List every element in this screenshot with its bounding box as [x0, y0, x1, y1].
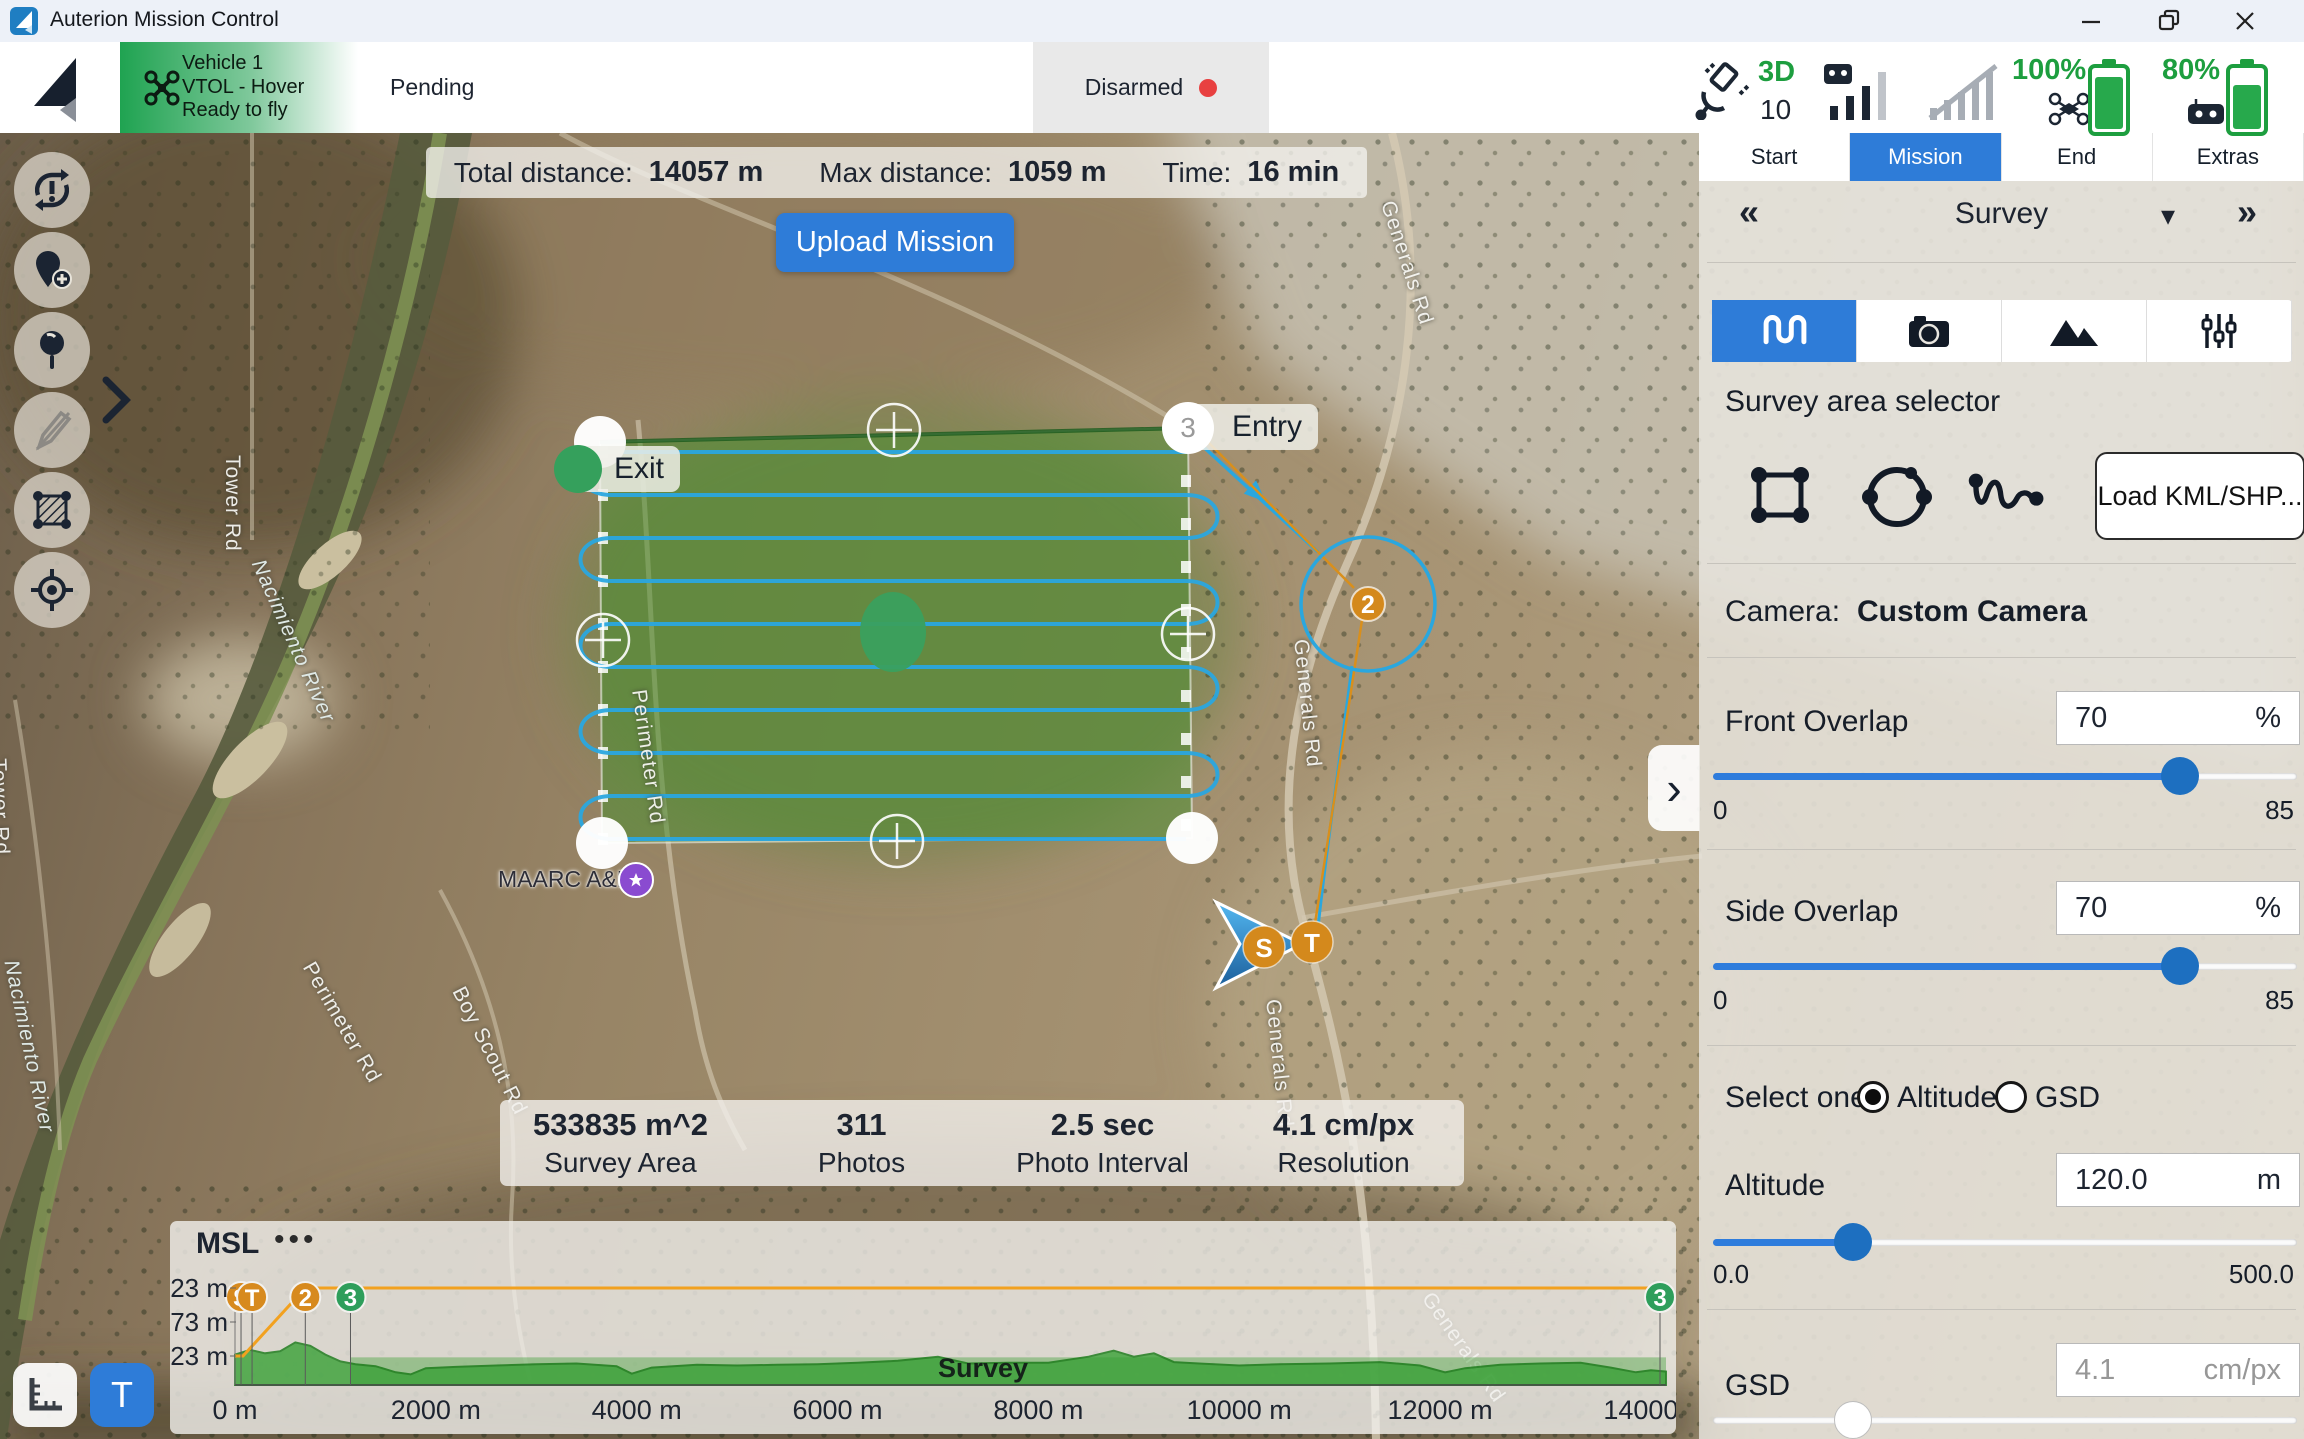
segment-advanced-button[interactable] [2147, 300, 2292, 362]
vehicle-battery-drone-icon [2048, 90, 2090, 128]
altitude-label: Altitude [1725, 1169, 1825, 1203]
altitude-max: 500.0 [2229, 1259, 2294, 1290]
chart-x-tick: 14000 [1603, 1395, 1676, 1425]
upload-mission-button[interactable]: Upload Mission [776, 213, 1014, 272]
survey-stats-bar: 533835 m^2 Survey Area 311 Photos 2.5 se… [500, 1100, 1464, 1186]
side-overlap-min: 0 [1713, 985, 1727, 1016]
tab-mission[interactable]: Mission [1850, 133, 2001, 181]
transects-icon [1758, 313, 1810, 349]
max-distance-value: 1059 m [1008, 156, 1106, 189]
altitude-slider-handle[interactable] [1834, 1223, 1872, 1261]
chart-x-tick: 8000 m [993, 1395, 1083, 1425]
stat-resolution: 4.1 cm/px Resolution [1223, 1105, 1464, 1182]
stat-survey-area: 533835 m^2 Survey Area [500, 1105, 741, 1182]
gsd-value: 4.1 [2075, 1354, 2115, 1387]
telemetry-signal-lost-icon[interactable] [1926, 60, 2002, 122]
gps-fix-type: 3D [1758, 56, 1795, 89]
poi-badge-icon[interactable] [618, 862, 654, 898]
svg-text:T: T [245, 1285, 260, 1312]
gps-satellite-icon[interactable] [1694, 58, 1752, 120]
mission-item-dropdown-icon[interactable]: ▾ [2161, 199, 2175, 232]
altitude-radio-label[interactable]: Altitude [1897, 1081, 1997, 1115]
front-overlap-slider[interactable] [1713, 773, 2297, 780]
chart-x-tick: 12000 m [1388, 1395, 1493, 1425]
exit-marker[interactable] [554, 445, 602, 493]
quadcopter-icon [144, 70, 180, 106]
draw-tool-button[interactable] [14, 392, 90, 468]
next-mission-item-button[interactable]: » [2237, 191, 2257, 233]
altitude-radio[interactable] [1857, 1081, 1889, 1113]
tab-extras[interactable]: Extras [2153, 133, 2304, 181]
road-label-tower-rd-1: Tower Rd [220, 455, 244, 552]
mission-status[interactable]: Pending [390, 42, 474, 133]
segment-terrain-button[interactable] [2002, 300, 2147, 362]
altitude-min: 0.0 [1713, 1259, 1749, 1290]
close-icon [2234, 10, 2256, 32]
side-overlap-label: Side Overlap [1725, 895, 1898, 929]
circle-shape-icon [1859, 457, 1935, 533]
corner-handle-entry[interactable]: 3 [1162, 402, 1214, 454]
front-overlap-max: 85 [2265, 795, 2294, 826]
survey-area-tool-button[interactable] [14, 472, 90, 548]
altitude-unit: m [2257, 1164, 2281, 1197]
camera-label: Camera: [1725, 595, 1840, 629]
circle-area-button[interactable] [1857, 455, 1937, 535]
draw-icon [29, 407, 75, 453]
side-overlap-slider[interactable] [1713, 963, 2297, 970]
controller-battery-percent: 80% [2162, 54, 2220, 87]
panel-collapse-button[interactable]: › [1648, 745, 1700, 831]
svg-text:3: 3 [344, 1285, 357, 1312]
app-logo-icon [10, 7, 38, 35]
center-on-location-button[interactable] [14, 552, 90, 628]
resolution-value: 4.1 cm/px [1223, 1105, 1464, 1145]
photos-value: 311 [741, 1105, 982, 1145]
mountain-icon [2048, 314, 2100, 348]
sync-mission-button[interactable] [14, 152, 90, 228]
survey-area-label: Survey Area [500, 1145, 741, 1181]
chart-y-ticks: 323 m273 m223 m [170, 1273, 236, 1371]
mission-item-selector[interactable]: Survey [1699, 197, 2304, 231]
panel-collapse-chevron-icon: › [1666, 761, 1681, 815]
polygon-shape-icon [1745, 459, 1817, 531]
survey-area-selector-label: Survey area selector [1725, 385, 2000, 419]
vehicle-selector[interactable]: Vehicle 1 VTOL - Hover Ready to fly [120, 42, 358, 133]
segment-camera-button[interactable] [1857, 300, 2002, 362]
tab-start[interactable]: Start [1699, 133, 1850, 181]
add-waypoint-button[interactable] [14, 232, 90, 308]
total-distance-value: 14057 m [649, 156, 764, 189]
exit-label: Exit [614, 452, 664, 486]
gsd-label: GSD [1725, 1369, 1790, 1403]
arm-status-label: Disarmed [1085, 74, 1183, 101]
gsd-input[interactable]: 4.1 cm/px [2056, 1343, 2300, 1397]
pin-tool-button[interactable] [14, 312, 90, 388]
tab-end[interactable]: End [2002, 133, 2153, 181]
restore-icon [2157, 9, 2181, 33]
upload-mission-label: Upload Mission [796, 226, 994, 259]
front-overlap-unit: % [2255, 702, 2281, 735]
minimize-icon [2080, 10, 2102, 32]
gsd-slider-handle[interactable] [1834, 1401, 1872, 1439]
front-overlap-label: Front Overlap [1725, 705, 1908, 739]
survey-band-label: Survey [938, 1353, 1028, 1383]
load-kml-shp-label: Load KML/SHP... [2097, 481, 2302, 512]
chevron-right-icon [98, 372, 134, 428]
left-toolbar-expand-button[interactable] [98, 372, 134, 433]
max-distance-label: Max distance: [819, 157, 992, 189]
elevation-plot: ST233 0 m2000 m4000 m6000 m8000 m10000 m… [170, 1221, 1676, 1434]
main-toolbar: Vehicle 1 VTOL - Hover Ready to fly Pend… [0, 42, 2304, 133]
chart-y-tick: 323 m [170, 1273, 228, 1303]
elevation-profile-panel: ST233 0 m2000 m4000 m6000 m8000 m10000 m… [170, 1221, 1676, 1434]
vehicle-type: VTOL - Hover [182, 76, 304, 100]
chart-title: MSL [196, 1227, 259, 1261]
photo-interval-label: Photo Interval [982, 1145, 1223, 1181]
close-button[interactable] [2216, 0, 2274, 42]
svg-text:2: 2 [299, 1285, 312, 1312]
front-overlap-min: 0 [1713, 795, 1727, 826]
ruler-icon [24, 1374, 66, 1416]
chart-x-tick: 6000 m [792, 1395, 882, 1425]
crosshair-icon [29, 567, 75, 613]
sync-warning-icon [29, 167, 75, 213]
measure-tool-button[interactable] [13, 1363, 77, 1427]
resolution-label: Resolution [1223, 1145, 1464, 1181]
chart-x-tick: 0 m [212, 1395, 257, 1425]
chart-x-ticks: 0 m2000 m4000 m6000 m8000 m10000 m12000 … [212, 1395, 1676, 1425]
window-titlebar: Auterion Mission Control [0, 0, 2304, 42]
auterion-logo-icon[interactable] [30, 54, 86, 124]
altitude-value: 120.0 [2075, 1164, 2148, 1197]
chart-x-tick: 4000 m [592, 1395, 682, 1425]
entry-label: Entry [1232, 410, 1302, 444]
chart-y-tick: 223 m [170, 1341, 228, 1371]
controller-battery-icon[interactable] [2226, 64, 2268, 136]
minimize-button[interactable] [2062, 0, 2120, 42]
plan-tabs: Start Mission End Extras [1699, 133, 2304, 181]
vehicle-readiness: Ready to fly [182, 99, 304, 123]
front-overlap-value: 70 [2075, 702, 2107, 735]
photo-interval-value: 2.5 sec [982, 1105, 1223, 1145]
mission-settings-panel: Start Mission End Extras « Survey ▾ » [1699, 133, 2304, 1439]
side-overlap-max: 85 [2265, 985, 2294, 1016]
mission-altitude-line [235, 1288, 1666, 1356]
stat-photo-interval: 2.5 sec Photo Interval [982, 1105, 1223, 1182]
terrain-button-label: T [111, 1374, 133, 1416]
front-overlap-input[interactable]: 70 % [2056, 691, 2300, 745]
gsd-unit: cm/px [2204, 1354, 2281, 1387]
total-distance-label: Total distance: [454, 157, 633, 189]
gsd-radio-label[interactable]: GSD [2035, 1081, 2100, 1115]
armed-indicator-dot [1199, 79, 1217, 97]
controller-battery-rc-icon [2186, 98, 2226, 126]
segment-transects-button[interactable] [1712, 300, 1857, 362]
svg-text:3: 3 [1653, 1285, 1666, 1312]
vehicle-battery-percent: 100% [2012, 54, 2086, 87]
stat-photos: 311 Photos [741, 1105, 982, 1182]
mission-summary-bar: Total distance: 14057 m Max distance: 10… [426, 147, 1367, 198]
gsd-radio[interactable] [1995, 1081, 2027, 1113]
window-title: Auterion Mission Control [50, 8, 279, 32]
camera-value[interactable]: Custom Camera [1857, 595, 2087, 629]
polygon-area-button[interactable] [1741, 455, 1821, 535]
photos-label: Photos [741, 1145, 982, 1181]
gps-satellite-count: 10 [1760, 94, 1791, 126]
freehand-area-button[interactable] [1967, 455, 2047, 535]
maximize-button[interactable] [2140, 0, 2198, 42]
side-overlap-input[interactable]: 70 % [2056, 881, 2300, 935]
gsd-slider[interactable] [1713, 1417, 2297, 1424]
chart-x-tick: 2000 m [391, 1395, 481, 1425]
chart-y-tick: 273 m [170, 1307, 228, 1337]
side-overlap-value: 70 [2075, 892, 2107, 925]
survey-mode-segments [1712, 300, 2292, 362]
survey-area-icon [29, 487, 75, 533]
survey-area-value: 533835 m^2 [500, 1105, 741, 1145]
time-value: 16 min [1247, 156, 1339, 189]
camera-icon [1908, 314, 1950, 348]
sliders-icon [2200, 312, 2238, 350]
time-label: Time: [1162, 157, 1231, 189]
terrain-toggle-button[interactable]: T [90, 1363, 154, 1427]
vehicle-battery-icon[interactable] [2088, 64, 2130, 136]
pin-icon [29, 327, 75, 373]
altitude-slider[interactable] [1713, 1239, 2297, 1246]
load-kml-shp-button[interactable]: Load KML/SHP... [2095, 452, 2304, 540]
altitude-input[interactable]: 120.0 m [2056, 1153, 2300, 1207]
select-one-label: Select one: [1725, 1081, 1875, 1115]
arm-status-button[interactable]: Disarmed [1033, 42, 1269, 133]
side-overlap-unit: % [2255, 892, 2281, 925]
side-overlap-slider-handle[interactable] [2161, 947, 2199, 985]
entry-waypoint-number: 3 [1180, 412, 1196, 444]
poi-label: MAARC A&B [498, 866, 632, 893]
rc-signal-icon[interactable] [1822, 60, 1898, 122]
chart-menu-dots[interactable]: ••• [274, 1223, 318, 1257]
freehand-shape-icon [1967, 465, 2047, 525]
vehicle-name: Vehicle 1 [182, 52, 304, 76]
add-location-pin-icon [29, 247, 75, 293]
chart-x-tick: 10000 m [1187, 1395, 1292, 1425]
front-overlap-slider-handle[interactable] [2161, 757, 2199, 795]
